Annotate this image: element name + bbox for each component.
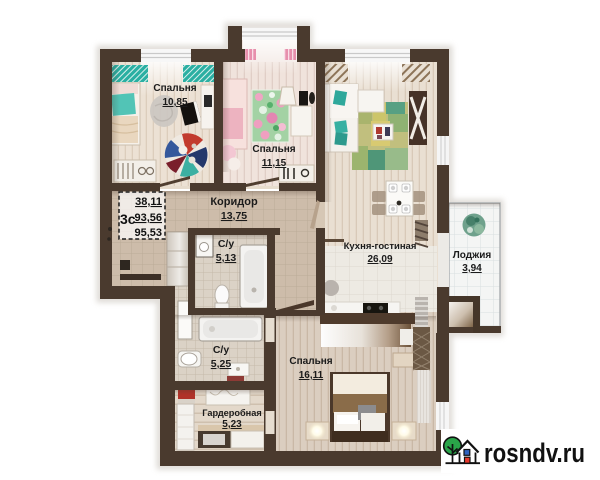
- svg-text:Коридор: Коридор: [210, 196, 258, 208]
- svg-text:11,15: 11,15: [262, 158, 287, 169]
- svg-text:13,75: 13,75: [221, 210, 247, 222]
- svg-text:С/у: С/у: [218, 238, 235, 250]
- svg-text:16,11: 16,11: [299, 370, 324, 381]
- svg-text:93,56: 93,56: [134, 212, 162, 224]
- svg-text:5,13: 5,13: [216, 252, 237, 264]
- svg-text:5,23: 5,23: [222, 419, 242, 430]
- svg-text:26,09: 26,09: [367, 254, 392, 265]
- svg-text:С/у: С/у: [213, 344, 230, 356]
- svg-text:3,94: 3,94: [462, 263, 482, 274]
- svg-text:38,11: 38,11: [135, 196, 162, 208]
- svg-text:Спальня: Спальня: [252, 144, 295, 155]
- svg-text:Кухня-гостиная: Кухня-гостиная: [344, 241, 417, 252]
- svg-text:Спальня: Спальня: [289, 356, 332, 367]
- svg-text:3с: 3с: [120, 211, 136, 227]
- svg-text:95,53: 95,53: [134, 227, 162, 239]
- svg-text:Спальня: Спальня: [153, 83, 196, 94]
- svg-text:5,25: 5,25: [211, 358, 232, 370]
- svg-text:rosndv.ru: rosndv.ru: [484, 438, 585, 468]
- svg-text:Лоджия: Лоджия: [453, 250, 492, 261]
- svg-text:Гардеробная: Гардеробная: [202, 408, 261, 418]
- svg-text:10,85: 10,85: [162, 97, 187, 108]
